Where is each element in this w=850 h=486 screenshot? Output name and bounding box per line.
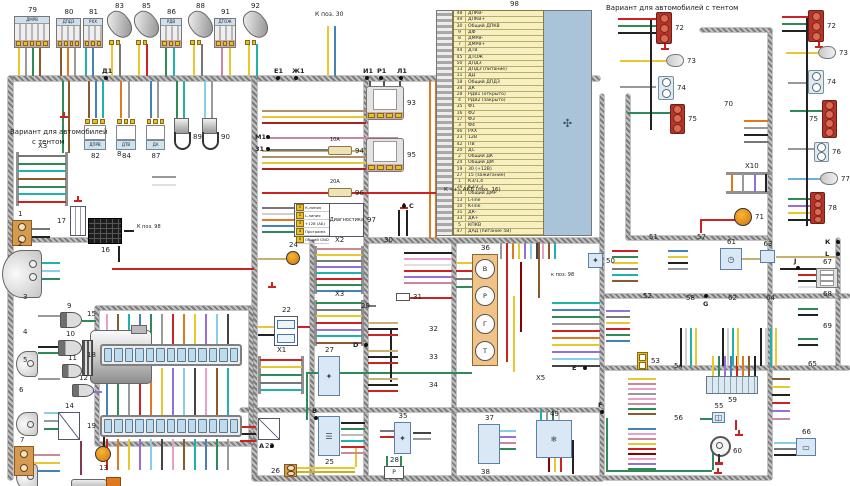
wire (327, 26, 329, 76)
ec-l: 30 (+12В) (466, 167, 492, 172)
wiring-loom (604, 294, 850, 298)
wire (404, 282, 452, 284)
component-number: 33 (429, 354, 438, 361)
component-number: Х1 (277, 347, 286, 354)
wire (712, 356, 714, 376)
component-Х1 (258, 356, 304, 394)
wire (606, 340, 630, 342)
ypins (57, 40, 80, 47)
component-Х2 (314, 246, 364, 294)
wire (240, 440, 256, 442)
cap (183, 7, 217, 42)
wire (700, 418, 712, 420)
component-number: 50 (606, 258, 615, 265)
wiring-loom (95, 306, 253, 310)
part: ▭ (802, 443, 810, 452)
ec-l: Ф1 (466, 104, 475, 109)
wiring-loom (600, 94, 604, 480)
ec-n: 10 (454, 204, 466, 209)
ground-icon (735, 430, 743, 437)
wire (628, 443, 656, 445)
component-number: 96 (355, 190, 364, 197)
component-number: 63 (764, 241, 773, 248)
wire (798, 308, 818, 310)
wire (685, 328, 687, 366)
component-number: 51 (649, 234, 658, 241)
part (125, 348, 133, 362)
component-number: 52 (643, 293, 652, 300)
part (30, 41, 35, 46)
wire (128, 81, 130, 118)
component-76 (814, 142, 829, 162)
part (673, 114, 682, 123)
wire (506, 258, 508, 362)
ec-n: 3 (454, 123, 466, 128)
ec-n: 50 (454, 61, 466, 66)
part (230, 419, 238, 433)
component-number: 53 (651, 358, 660, 365)
dn: 4 (296, 228, 304, 235)
junction-node (836, 252, 840, 256)
part (268, 286, 276, 288)
part (70, 41, 74, 46)
wire (124, 230, 134, 232)
wiring-loom (364, 238, 604, 243)
component-number: 55 (715, 403, 724, 410)
wire (772, 394, 790, 396)
wire (552, 330, 600, 332)
wire (760, 328, 762, 366)
ec-n: 5 (454, 223, 466, 228)
ec-l: Ф4 (466, 123, 475, 128)
wire (150, 81, 152, 118)
text-label: Вариант для автомобилей (10, 128, 108, 136)
component-number: 32 (429, 326, 438, 333)
wire (404, 264, 452, 266)
component-number: 30 (384, 237, 393, 244)
wiring-loom (604, 366, 770, 370)
part (817, 143, 826, 152)
wire (297, 471, 355, 473)
part (188, 419, 196, 433)
component-number: 49 (550, 411, 559, 418)
junction-node (294, 76, 298, 80)
component-number: 8 (117, 151, 121, 158)
component-number: 35 (399, 413, 408, 420)
component-number: 70 (724, 101, 733, 108)
component-86: РДВ (160, 18, 182, 48)
wire (221, 46, 223, 76)
part (316, 254, 362, 256)
component-number: 34 (429, 382, 438, 389)
component-number: 13 (99, 465, 108, 472)
wire (782, 16, 808, 18)
wire (380, 430, 395, 432)
wire (772, 386, 790, 388)
ec-n: 48 (454, 11, 466, 16)
component-94 (328, 146, 352, 155)
wire (798, 274, 816, 276)
part (252, 40, 257, 45)
component-number: 24 (289, 242, 298, 249)
wire (34, 454, 60, 456)
component-83 (106, 12, 132, 46)
wire (240, 426, 256, 428)
wire (262, 122, 366, 124)
cap (238, 7, 272, 42)
junction-label: Р1 (377, 68, 386, 75)
wire (404, 258, 452, 260)
part (814, 193, 822, 201)
part (230, 348, 238, 362)
part: ❄ (551, 435, 558, 444)
ec-l: L-line (466, 198, 480, 203)
part (153, 119, 157, 124)
part (97, 41, 101, 46)
component-13 (95, 446, 111, 462)
wire (194, 439, 196, 470)
ec-n: 1 (454, 179, 466, 184)
lab: ДА (146, 140, 165, 150)
component-Х3 (314, 300, 364, 346)
wire (262, 225, 294, 227)
wire (205, 439, 207, 470)
part (27, 421, 34, 428)
g: В (475, 259, 495, 279)
wire (117, 439, 119, 470)
wire (628, 413, 656, 415)
wire (552, 337, 600, 339)
wire (775, 328, 777, 366)
component-number: 18 (87, 352, 96, 359)
wire (524, 243, 526, 259)
component-number: 28 (390, 457, 399, 464)
component-number: 5 (23, 357, 27, 364)
part (64, 41, 68, 46)
wire (368, 334, 398, 336)
part (229, 41, 234, 46)
component-number: 69 (823, 323, 832, 330)
wire (740, 258, 762, 260)
part (100, 119, 105, 124)
wire (194, 368, 196, 415)
wire (341, 452, 365, 454)
junction-node (836, 240, 840, 244)
wire (668, 250, 688, 252)
component-number: 15 (87, 311, 96, 318)
component-77 (820, 172, 838, 185)
component-92 (242, 12, 268, 46)
component-87: ДА (146, 118, 165, 150)
wire (774, 442, 796, 444)
part (109, 40, 114, 45)
component-number: 91 (221, 9, 230, 16)
wire (727, 328, 729, 366)
part (660, 14, 669, 23)
wire (628, 433, 656, 435)
ec-n: 33 (454, 216, 466, 221)
component-78 (810, 192, 825, 224)
component-80: ДПДЗ (56, 18, 81, 48)
text-label: 38 (481, 468, 490, 476)
part (146, 348, 154, 362)
wire (500, 436, 516, 438)
wiring-loom (252, 476, 604, 481)
wire (152, 176, 176, 178)
wire (368, 356, 398, 358)
component-number: 17 (57, 218, 66, 225)
part (316, 260, 362, 262)
part (209, 419, 217, 433)
ec-l: РДВ2 (закрыто) (466, 98, 506, 103)
wire (628, 378, 656, 380)
wire (183, 314, 185, 344)
component-number: Х3 (335, 291, 344, 298)
component-number: 10 (66, 331, 75, 338)
rows: 1К-линия2L-линия3+12В (АБ)4Программ.5Общ… (295, 204, 329, 236)
wire (368, 350, 398, 352)
wire (118, 246, 120, 262)
wire (298, 326, 310, 328)
wire (68, 81, 70, 153)
ec-l: ДТВ (466, 48, 478, 53)
part (316, 266, 362, 268)
junction-label: К (825, 239, 830, 246)
wire (42, 270, 60, 272)
junction-label: В (312, 408, 317, 415)
part: ✦ (326, 372, 333, 381)
part: ✦ (592, 256, 599, 265)
ec-n: 27 (454, 173, 466, 178)
junction-label: G (703, 301, 708, 308)
rl-t: РХХ (84, 19, 102, 26)
ec-n: 30 (454, 24, 466, 29)
part (219, 419, 227, 433)
part (219, 348, 227, 362)
ypins (215, 40, 235, 47)
stem (718, 454, 720, 462)
part (660, 24, 669, 33)
ec-l: ДМРВ- (466, 36, 483, 41)
component-9 (60, 312, 82, 328)
component-90 (200, 118, 218, 156)
component-number: Х5 (536, 375, 545, 382)
wire (518, 243, 520, 259)
component-75 (670, 104, 685, 134)
wire (612, 274, 638, 276)
wire (695, 328, 697, 366)
part (260, 389, 302, 391)
component-number: 2 (18, 241, 22, 248)
part: ☰ (325, 432, 332, 441)
wire (798, 280, 816, 282)
junction-node (379, 76, 383, 80)
wire (772, 410, 790, 412)
component-number: 6 (19, 387, 23, 394)
component-number: 90 (221, 134, 230, 141)
wire (25, 46, 27, 76)
part (20, 450, 28, 458)
junction-label: Л1 (397, 68, 407, 75)
wiring-loom (604, 476, 770, 480)
component-14 (58, 412, 80, 440)
component-number: 94 (355, 148, 364, 155)
wire (770, 328, 772, 366)
component-26 (284, 464, 297, 477)
wire (406, 210, 408, 236)
wire (744, 127, 768, 129)
ec-l: КПКВ (466, 223, 481, 228)
dn: 2 (296, 212, 304, 219)
wire (368, 322, 398, 324)
wire (774, 454, 796, 456)
wire (606, 310, 630, 312)
part (177, 419, 185, 433)
wire (262, 162, 366, 164)
component-35: ✦ (394, 422, 411, 454)
wire (788, 178, 820, 180)
ec-n: 8 (454, 36, 466, 41)
part (377, 165, 384, 170)
junction-label: Д1 (102, 68, 112, 75)
component-number: 61 (727, 239, 736, 246)
ec-n: 11 (454, 73, 466, 78)
ypins (15, 40, 49, 47)
wire (552, 344, 600, 346)
ec-l: ДПДЗ (466, 61, 482, 66)
wire (173, 46, 175, 76)
part (825, 101, 834, 110)
component-number: 74 (677, 85, 686, 92)
row: 5Общий GND (295, 236, 329, 244)
part (260, 359, 302, 361)
wire (782, 23, 808, 25)
ec-n: 23 (454, 135, 466, 140)
component-number: 65 (808, 361, 817, 368)
part (175, 41, 180, 46)
ec-n: 18 (454, 80, 466, 85)
wire (538, 242, 540, 298)
wire (32, 228, 50, 230)
part (177, 348, 185, 362)
part (316, 315, 362, 317)
wire (341, 446, 365, 448)
wiring-loom (626, 94, 630, 240)
g: Г (475, 314, 495, 334)
wire (552, 316, 600, 318)
component-number: 7 (20, 437, 24, 444)
ec-n: 13 (454, 67, 466, 72)
part (160, 119, 164, 124)
component-23 (258, 418, 280, 440)
ec-tab: 48ДПКВ-49ДПКВ+30Общий ДПКВ9ДФ8ДМРВ-7ДМРВ… (453, 10, 544, 236)
component-number: 60 (733, 448, 742, 455)
component-number: 29 (361, 303, 370, 310)
wire (204, 81, 206, 118)
component-3 (16, 351, 38, 377)
component-number: 36 (481, 245, 490, 252)
row: 2L-линия (295, 212, 329, 220)
wire (788, 148, 814, 150)
component-25: ☰ (318, 416, 340, 456)
wire (38, 315, 60, 317)
part (117, 119, 122, 124)
wire (788, 82, 808, 84)
ec-l: ДД (466, 73, 475, 78)
part (143, 40, 148, 45)
junction-node (266, 147, 270, 151)
junction-node (270, 444, 274, 448)
part: ◫ (715, 413, 723, 422)
component-number: 74 (827, 79, 836, 86)
wire (413, 432, 431, 434)
component-12 (72, 384, 94, 397)
wire (606, 322, 630, 324)
wire (216, 314, 218, 344)
wire (176, 81, 178, 118)
wire (554, 243, 556, 259)
part (162, 41, 167, 46)
dl: +12В (АБ) (305, 221, 325, 226)
ec-l: ДМРВ+ (466, 42, 485, 47)
component-number: 11 (68, 355, 77, 362)
wire (552, 302, 600, 304)
wire (500, 243, 502, 259)
junction-node (399, 76, 403, 80)
part (731, 174, 733, 192)
wire (85, 46, 87, 76)
wire (183, 368, 185, 415)
component-number: 14 (65, 403, 74, 410)
wire (227, 439, 229, 470)
row: 1К-линия (295, 204, 329, 212)
wire (34, 462, 60, 464)
wire (628, 453, 656, 455)
wire (119, 44, 121, 76)
component-17 (70, 206, 86, 236)
wire (724, 356, 726, 376)
component-number: 68 (823, 291, 832, 298)
ec-l: ДПКВ- (466, 11, 483, 16)
dl: К-линия (305, 205, 321, 210)
component-number: 62 (728, 295, 737, 302)
text-label: К поз. 98 (137, 225, 161, 231)
component-18 (100, 344, 242, 366)
wire (530, 243, 532, 259)
junction-label: С (409, 203, 414, 210)
junction-label: 31 (255, 146, 264, 153)
component-50: ✦ (588, 253, 603, 268)
wire (80, 441, 82, 475)
wire (548, 243, 550, 259)
wire (628, 403, 656, 405)
wire (262, 110, 366, 112)
part (316, 272, 362, 274)
ec-n: 35 (454, 104, 466, 109)
wiring-loom (836, 238, 840, 368)
ground-icon (714, 468, 722, 475)
wire (112, 268, 254, 270)
ec-n: 31 (454, 210, 466, 215)
wire (628, 398, 656, 400)
wire (227, 368, 229, 415)
junction-label: Е (572, 365, 576, 372)
wire (612, 268, 638, 270)
wire (628, 383, 656, 385)
part (156, 419, 164, 433)
component-number: 83 (115, 3, 124, 10)
wire (42, 262, 60, 264)
